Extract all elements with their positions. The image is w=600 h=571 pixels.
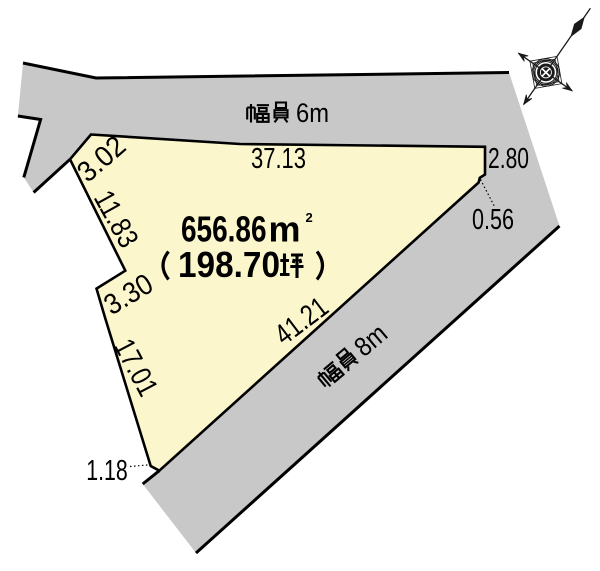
svg-text:198.70: 198.70 xyxy=(178,244,280,285)
svg-text:37.13: 37.13 xyxy=(251,143,306,175)
svg-text:6m: 6m xyxy=(296,98,329,128)
svg-text:2: 2 xyxy=(306,210,313,225)
svg-text:1.18: 1.18 xyxy=(86,455,128,487)
svg-text:2.80: 2.80 xyxy=(488,143,529,175)
svg-text:0.56: 0.56 xyxy=(472,204,514,236)
